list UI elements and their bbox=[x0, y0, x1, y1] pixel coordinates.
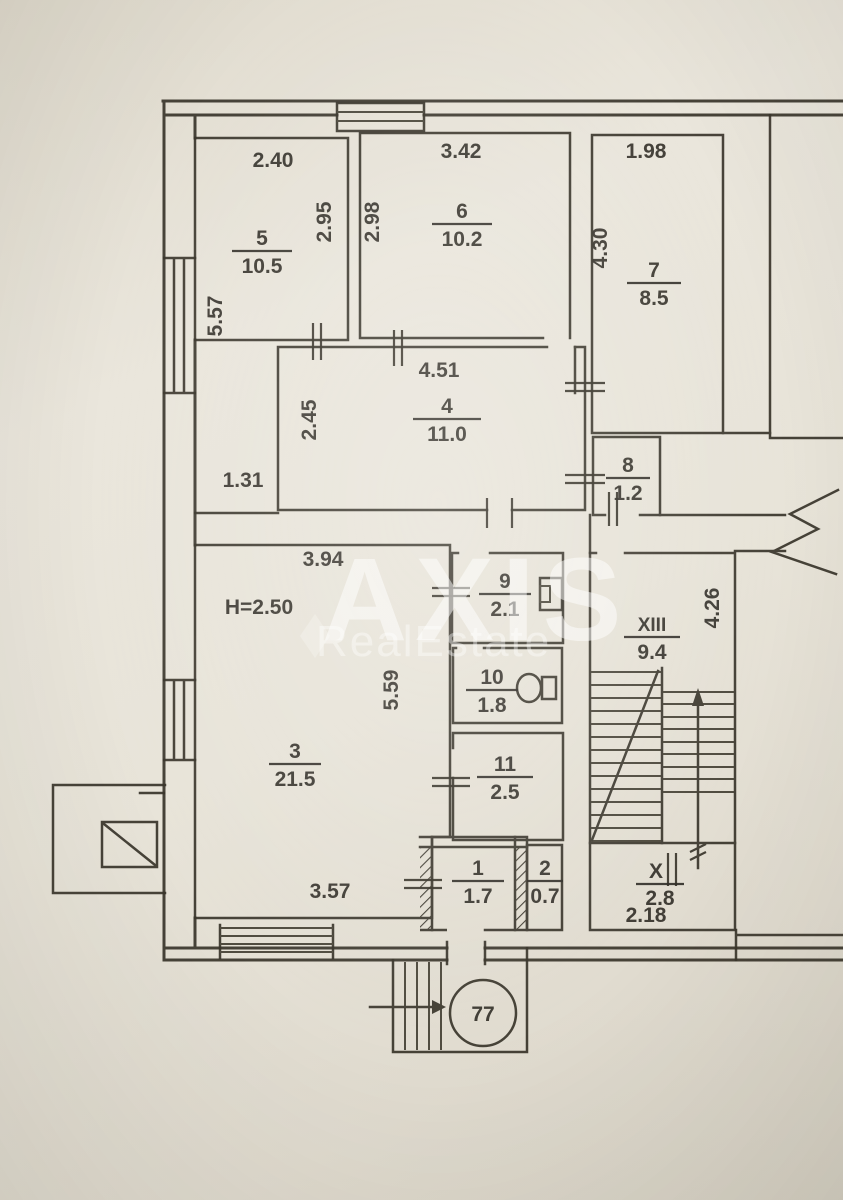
watermark-subtitle: RealEstate bbox=[316, 617, 551, 666]
dim-room4-depth: 2.45 bbox=[298, 399, 321, 440]
dim-room7-depth: 4.30 bbox=[589, 228, 612, 269]
room-right-outline bbox=[770, 115, 843, 438]
dim-room6-depth: 2.98 bbox=[361, 201, 384, 242]
svg-text:3: 3 bbox=[289, 740, 301, 763]
svg-text:2: 2 bbox=[539, 857, 551, 880]
svg-text:10.5: 10.5 bbox=[242, 255, 283, 278]
room-label-4: 4 11.0 bbox=[413, 395, 481, 446]
svg-text:8.5: 8.5 bbox=[639, 287, 669, 310]
dim-room4-width: 4.51 bbox=[419, 359, 460, 382]
vent-shaft-hatch bbox=[515, 847, 527, 930]
dim-stair-depth: 4.26 bbox=[701, 588, 724, 629]
room-label-11: 11 2.5 bbox=[477, 753, 533, 804]
svg-text:1.8: 1.8 bbox=[477, 694, 507, 717]
room-label-6: 6 10.2 bbox=[432, 200, 492, 251]
svg-text:10: 10 bbox=[480, 666, 503, 689]
room-label-3: 3 21.5 bbox=[269, 740, 321, 791]
svg-text:5: 5 bbox=[256, 227, 268, 250]
room-label-7: 7 8.5 bbox=[627, 259, 681, 310]
svg-text:11.0: 11.0 bbox=[427, 423, 467, 446]
svg-text:10.2: 10.2 bbox=[442, 228, 483, 251]
room-1-outline bbox=[420, 837, 527, 930]
porch bbox=[53, 785, 165, 893]
break-line-symbol bbox=[772, 490, 838, 574]
entrance-number: 77 bbox=[471, 1003, 494, 1026]
dim-room7-width: 1.98 bbox=[626, 140, 667, 163]
dim-hall-nook: 1.31 bbox=[223, 469, 264, 492]
svg-text:1.2: 1.2 bbox=[613, 482, 642, 505]
dim-room5-side: 5.57 bbox=[204, 296, 227, 337]
window-left-lower bbox=[164, 680, 195, 760]
watermark: AXIS RealEstate bbox=[300, 534, 629, 666]
room-label-1: 1 1.7 bbox=[452, 857, 504, 908]
svg-text:1.7: 1.7 bbox=[463, 885, 492, 908]
room-label-8: 8 1.2 bbox=[606, 454, 650, 505]
dim-room5-width: 2.40 bbox=[253, 149, 294, 172]
svg-text:1: 1 bbox=[472, 857, 484, 880]
room-label-5: 5 10.5 bbox=[232, 227, 292, 278]
svg-text:X: X bbox=[649, 860, 663, 883]
windows bbox=[164, 103, 424, 958]
dim-room3-bottom: 3.57 bbox=[310, 880, 351, 903]
dim-room6-width: 3.42 bbox=[441, 140, 482, 163]
floorplan-drawing: 77 5 10.5 6 10.2 bbox=[0, 0, 843, 1200]
ceiling-height-note: H=2.50 bbox=[225, 596, 293, 619]
svg-text:9.4: 9.4 bbox=[637, 641, 667, 664]
svg-text:6: 6 bbox=[456, 200, 468, 223]
toilet-icon bbox=[517, 674, 556, 702]
svg-text:XIII: XIII bbox=[638, 615, 667, 636]
room-label-10: 10 1.8 bbox=[466, 666, 518, 717]
svg-text:2.5: 2.5 bbox=[490, 781, 520, 804]
entrance-arrow-head bbox=[432, 1000, 446, 1014]
dim-room5-depth: 2.95 bbox=[313, 201, 336, 242]
floorplan-scan: 77 5 10.5 6 10.2 bbox=[0, 0, 843, 1200]
room-label-stair-xiii: XIII 9.4 bbox=[624, 615, 680, 664]
dim-stair-bottom-width: 2.18 bbox=[626, 904, 667, 927]
window-left-upper bbox=[164, 258, 195, 393]
window-top bbox=[337, 103, 424, 131]
svg-text:7: 7 bbox=[648, 259, 660, 282]
svg-text:4: 4 bbox=[441, 395, 453, 418]
svg-text:11: 11 bbox=[494, 753, 517, 776]
window-bottom bbox=[220, 925, 333, 958]
svg-text:0.7: 0.7 bbox=[530, 885, 559, 908]
dim-room3-depth: 5.59 bbox=[380, 670, 403, 711]
stair-arrow-head bbox=[692, 688, 704, 706]
room-label-2: 2 0.7 bbox=[527, 857, 563, 908]
svg-text:21.5: 21.5 bbox=[275, 768, 316, 791]
svg-text:8: 8 bbox=[622, 454, 634, 477]
